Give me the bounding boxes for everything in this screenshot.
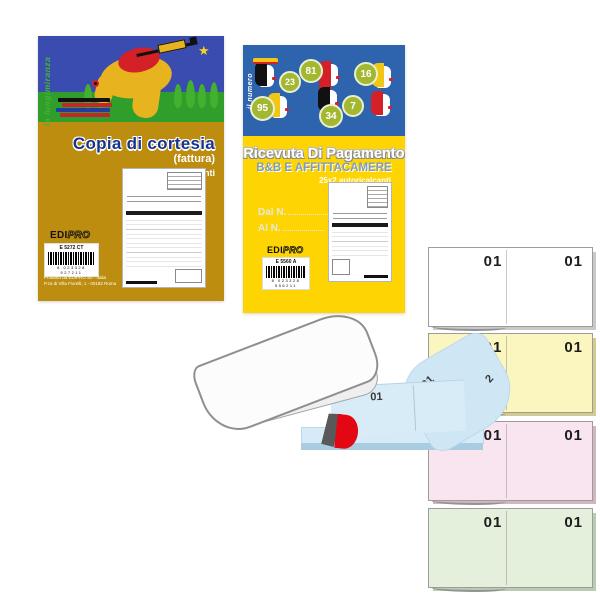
pad-number-right: 01 bbox=[564, 253, 583, 270]
numbered-pad-green: 01 01 bbox=[428, 508, 593, 588]
receipt-form-preview bbox=[328, 182, 392, 282]
book-icon bbox=[56, 108, 110, 112]
cover-illustration-faces: 23 81 16 95 34 7 bbox=[243, 45, 405, 136]
perforation-line bbox=[506, 511, 507, 585]
edipro-logo-pro: PRO bbox=[68, 230, 91, 241]
cover-title: Ricevuta Di Pagamento bbox=[243, 146, 405, 162]
pad-number-left: 01 bbox=[484, 427, 503, 444]
field-dal-line bbox=[288, 205, 330, 215]
number-bubble: 81 bbox=[299, 59, 323, 83]
book-icon bbox=[58, 98, 110, 102]
field-al-n: Al N. bbox=[258, 221, 325, 234]
cover-motto-vertical: la lungimiranza bbox=[42, 57, 52, 126]
numbered-pad-white: 01 01 bbox=[428, 247, 593, 327]
book-icon bbox=[60, 113, 110, 117]
form-header-lines bbox=[333, 209, 387, 219]
perforation-line bbox=[506, 424, 507, 498]
cover-subtitle: B&B E AFFITTACAMERE bbox=[243, 162, 405, 174]
pad-number-right: 01 bbox=[564, 339, 583, 356]
edipro-logo: EDIPRO bbox=[267, 245, 303, 255]
tree-icon bbox=[210, 82, 218, 108]
tree-icon bbox=[186, 80, 195, 108]
barcode: E 5560 A 8 023328 556211 bbox=[262, 257, 310, 290]
edipro-logo-edi: EDI bbox=[50, 230, 68, 241]
edipro-logo-edi: EDI bbox=[267, 245, 283, 255]
figure-eye bbox=[92, 80, 99, 87]
invoice-form-preview bbox=[122, 168, 206, 288]
face-icon bbox=[259, 65, 274, 87]
cover-title: Copia di cortesia bbox=[73, 134, 215, 154]
field-al-label: Al N. bbox=[258, 223, 281, 234]
field-dal-label: Dal N. bbox=[258, 207, 286, 218]
number-bubble: 34 bbox=[319, 104, 343, 128]
form-header-box bbox=[367, 186, 388, 208]
cover-motto-vertical: il numero bbox=[247, 73, 254, 109]
form-footer-bar bbox=[364, 275, 388, 278]
producer-line2: P.za di Villa Fiorelli, 1 - 00182 Roma bbox=[44, 281, 116, 287]
form-table-header bbox=[126, 211, 202, 215]
barcode-digits: 8 023328 556211 bbox=[265, 278, 307, 288]
number-bubble: 7 bbox=[342, 95, 364, 117]
form-header-lines bbox=[127, 192, 201, 206]
form-total-box bbox=[175, 269, 202, 283]
booklet-ricevuta-pagamento: 23 81 16 95 34 7 il numero Ricevuta Di P… bbox=[243, 45, 405, 313]
face-icon bbox=[376, 66, 391, 88]
form-header-box bbox=[167, 172, 202, 190]
sheet-number: 2 bbox=[483, 373, 496, 386]
barcode: E 5272 CT 8 023328 527211 bbox=[44, 243, 99, 277]
product-collage: ★ la lungimiranza Copia di cortesia (fat… bbox=[0, 0, 600, 600]
product-code: E 5560 A bbox=[265, 259, 307, 265]
book-icon bbox=[62, 103, 112, 107]
sheet-number: 01 bbox=[370, 391, 383, 404]
telescope-tip bbox=[189, 36, 198, 45]
cover-subtitle: (fattura) bbox=[173, 153, 215, 165]
tree-icon bbox=[174, 84, 182, 108]
telescope-tube bbox=[157, 39, 186, 54]
pad-number-right: 01 bbox=[564, 427, 583, 444]
pad-number-right: 01 bbox=[564, 514, 583, 531]
form-stamp-box bbox=[332, 259, 350, 275]
form-table-grid bbox=[332, 228, 388, 259]
tree-icon bbox=[198, 84, 206, 108]
form-footer-bar bbox=[126, 281, 157, 284]
barcode-bars bbox=[266, 266, 306, 278]
face-icon bbox=[375, 94, 390, 116]
barcode-digits: 8 023328 527211 bbox=[47, 265, 96, 275]
form-table-header bbox=[332, 223, 388, 227]
field-al-line bbox=[283, 221, 325, 231]
producer-note: Prodotto da EDIPRO Srl - Italia P.za di … bbox=[44, 275, 116, 287]
star-icon: ★ bbox=[198, 44, 210, 57]
perforation-line bbox=[413, 385, 416, 431]
number-bubble: 23 bbox=[279, 71, 301, 93]
edipro-logo: EDIPRO bbox=[50, 230, 90, 241]
number-bubble: 16 bbox=[354, 62, 378, 86]
pad-number-left: 01 bbox=[484, 253, 503, 270]
barcode-bars bbox=[48, 252, 95, 265]
booklet-copia-di-cortesia: ★ la lungimiranza Copia di cortesia (fat… bbox=[38, 36, 224, 301]
field-dal-n: Dal N. bbox=[258, 205, 330, 218]
cover-illustration-telescope: ★ bbox=[38, 36, 224, 122]
perforation-line bbox=[506, 250, 507, 324]
product-code: E 5272 CT bbox=[47, 245, 96, 251]
edipro-logo-pro: PRO bbox=[283, 245, 303, 255]
face-icon bbox=[323, 64, 338, 86]
form-table-grid bbox=[126, 216, 202, 267]
pad-number-left: 01 bbox=[484, 514, 503, 531]
